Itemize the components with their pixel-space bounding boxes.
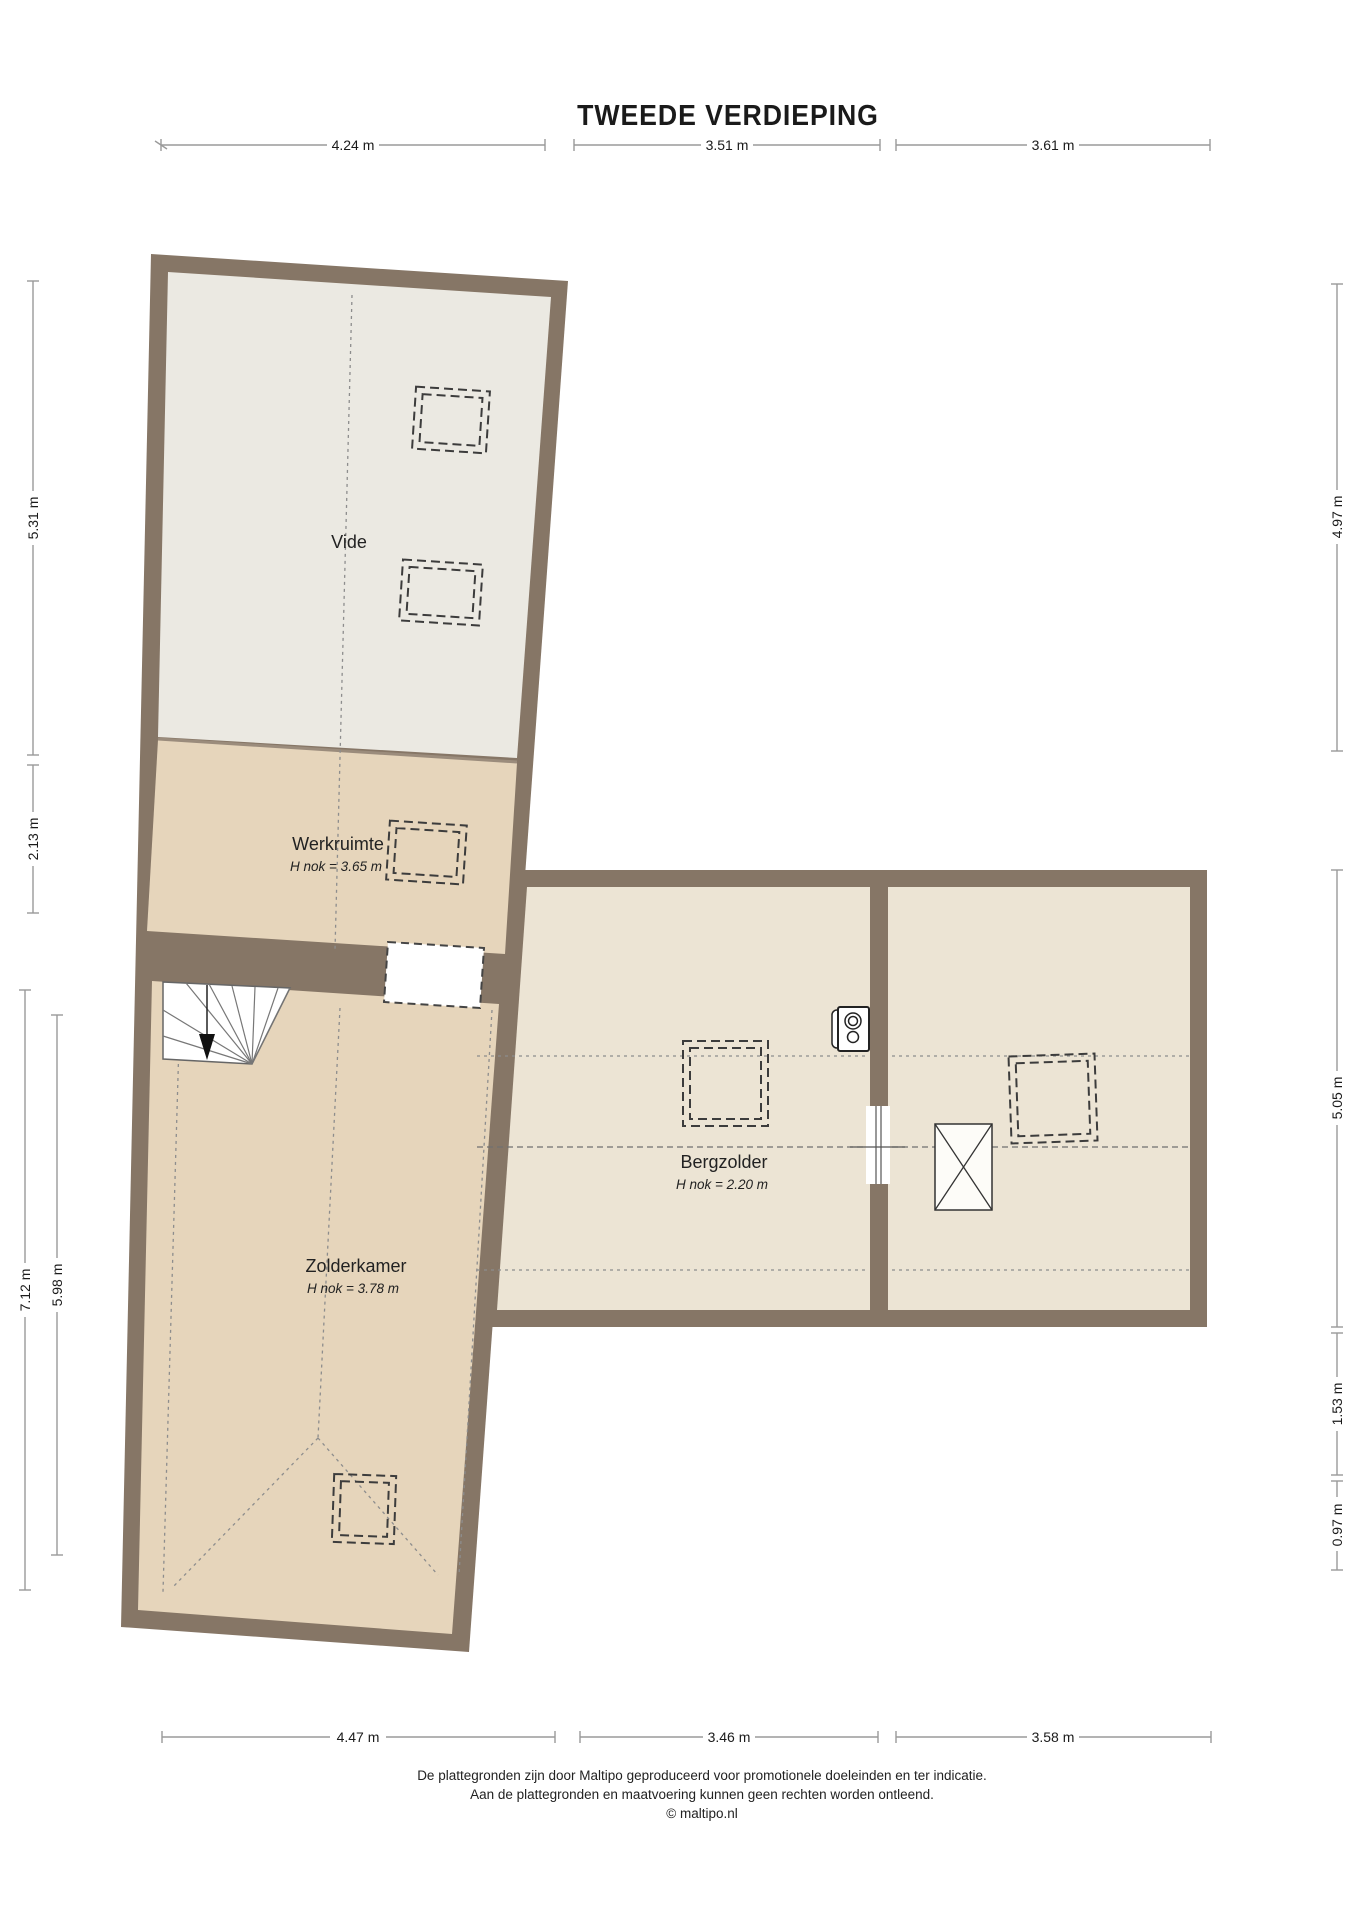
dimension-bottom-2: 3.46 m	[580, 1729, 878, 1745]
dimension-label: 3.58 m	[1032, 1729, 1075, 1745]
room-label-werkruimte: Werkruimte	[292, 834, 384, 854]
dimension-label: 5.05 m	[1329, 1077, 1345, 1120]
dimension-left-2: 2.13 m	[25, 765, 41, 913]
room-vide-floor	[158, 272, 551, 758]
dimension-label: 3.61 m	[1032, 137, 1075, 153]
dimension-label: 4.47 m	[337, 1729, 380, 1745]
room-label-zolderkamer: Zolderkamer	[305, 1256, 406, 1276]
footer-disclaimer-line2: Aan de plattegronden en maatvoering kunn…	[470, 1787, 934, 1802]
room-label-bergzolder: Bergzolder	[680, 1152, 767, 1172]
room-zolderkamer-floor	[138, 981, 499, 1634]
dimension-right-1: 4.97 m	[1329, 284, 1345, 751]
dimension-top-3: 3.61 m	[896, 137, 1210, 153]
dimension-label: 5.98 m	[49, 1264, 65, 1307]
dimension-bottom-3: 3.58 m	[896, 1729, 1211, 1745]
dimension-bottom-1: 4.47 m	[162, 1729, 555, 1745]
footer-copyright: © maltipo.nl	[666, 1806, 737, 1821]
room-note-bergzolder: H nok = 2.20 m	[676, 1177, 768, 1192]
page-title: TWEEDE VERDIEPING	[577, 99, 879, 131]
room-note-zolderkamer: H nok = 3.78 m	[307, 1281, 399, 1296]
room-bergzolder-right-floor	[888, 887, 1190, 1310]
footer-disclaimer-line1: De plattegronden zijn door Maltipo gepro…	[417, 1768, 987, 1783]
dimension-label: 5.31 m	[25, 497, 41, 540]
dimension-left-1: 5.31 m	[25, 281, 41, 755]
chimney-shaft-icon	[935, 1124, 992, 1210]
dimension-right-4: 0.97 m	[1329, 1481, 1345, 1570]
dimension-label: 4.97 m	[1329, 496, 1345, 539]
dimension-left-3: 7.12 m	[17, 990, 33, 1590]
room-note-werkruimte: H nok = 3.65 m	[290, 859, 382, 874]
dimension-right-2: 5.05 m	[1329, 870, 1345, 1327]
floorplan-canvas: TWEEDE VERDIEPING 4.24 m 3.51 m 3.61 m 4…	[0, 0, 1358, 1920]
dimension-label: 2.13 m	[25, 818, 41, 861]
dimension-right-3: 1.53 m	[1329, 1333, 1345, 1475]
wall-opening-zolderkamer	[384, 942, 484, 1008]
dimension-label: 3.46 m	[708, 1729, 751, 1745]
dimension-label: 7.12 m	[17, 1269, 33, 1312]
room-label-vide: Vide	[331, 532, 367, 552]
dimension-label: 1.53 m	[1329, 1383, 1345, 1426]
dimension-left-4: 5.98 m	[49, 1015, 65, 1555]
door-opening-bergzolder	[866, 1106, 890, 1184]
dimension-label: 4.24 m	[332, 137, 375, 153]
dimension-top-2: 3.51 m	[574, 137, 880, 153]
cv-boiler-icon	[832, 1007, 869, 1051]
dimension-label: 3.51 m	[706, 137, 749, 153]
dimension-top-1: 4.24 m	[155, 137, 545, 153]
dimension-label: 0.97 m	[1329, 1504, 1345, 1547]
